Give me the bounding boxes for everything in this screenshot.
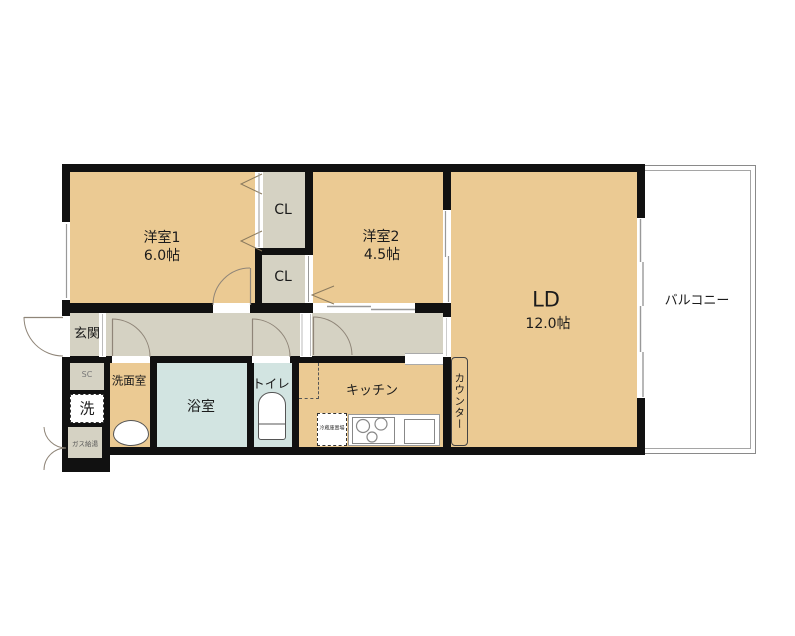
closet-label-top: CL [274,203,292,217]
wall [150,356,252,363]
door-arc-entrance [24,317,63,356]
wall [62,447,645,455]
wall [637,398,645,455]
washbasin [113,420,149,446]
toilet-fixture [258,392,286,440]
wall [255,255,262,303]
toilet-door-opening [252,356,290,363]
gas-heater-label: ガス給湯 [72,441,98,448]
toilet-label: トイレ [252,378,290,391]
closet-bottom-opening [305,255,313,303]
washroom-door-opening [112,356,150,363]
room-size-yoshitsu1: 6.0帖 [144,249,180,263]
genkan-threshold [99,313,106,357]
kitchen-sink [404,419,435,444]
wall [290,356,405,363]
room-label-yoshitsu1: 洋室1 [144,231,181,245]
entrance-door-opening [62,316,70,357]
wall [443,164,451,210]
wall [292,363,299,447]
corridor-door-threshold [300,313,312,357]
kitchen-dashed-area [299,363,319,399]
shoe-closet-label: SC [82,371,93,379]
balcony-window [637,218,645,398]
closet-top-opening [255,172,263,248]
room-label-ld: LD [532,290,560,311]
wall [443,303,451,317]
kitchen-label: キッチン [346,385,398,398]
wall [305,164,313,255]
balcony-area [645,165,756,454]
washroom-label: 洗面室 [112,375,147,387]
window-yoshitsu1 [62,222,70,300]
wall [62,356,112,363]
yoshitsu1-door-opening [213,303,250,313]
yoshitsu2-ld-sliding-door [443,210,451,303]
wall [150,363,157,447]
balcony-label: バルコニー [665,295,730,308]
wall [62,303,213,313]
counter-label: カウンター [454,372,465,430]
wall [637,164,645,218]
bathroom-label: 浴室 [187,400,215,414]
room-label-yoshitsu2: 洋室2 [363,230,400,244]
wall [62,164,70,222]
wall [443,357,451,447]
walkway-ld-opening [443,317,451,357]
closet-label-bottom: CL [274,270,292,284]
floor-plan: 洋室1 6.0帖 洋室2 4.5帖 LD 12.0帖 CL CL バルコニー 玄… [0,0,795,636]
room-size-yoshitsu2: 4.5帖 [364,248,400,262]
yoshitsu2-sliding-door [327,304,415,312]
fridge-space-label: 冷蔵庫置場 [319,427,344,432]
genkan-label: 玄関 [74,328,100,341]
walkway-floor [312,313,443,357]
kitchen-opening [405,353,443,365]
corridor-floor [106,313,300,357]
room-size-ld: 12.0帖 [525,317,570,331]
laundry-label: 洗 [79,402,94,417]
wall [250,303,313,313]
wall [62,164,645,172]
stove [352,417,395,444]
wall [255,248,310,255]
balcony-inner-line [645,170,751,449]
